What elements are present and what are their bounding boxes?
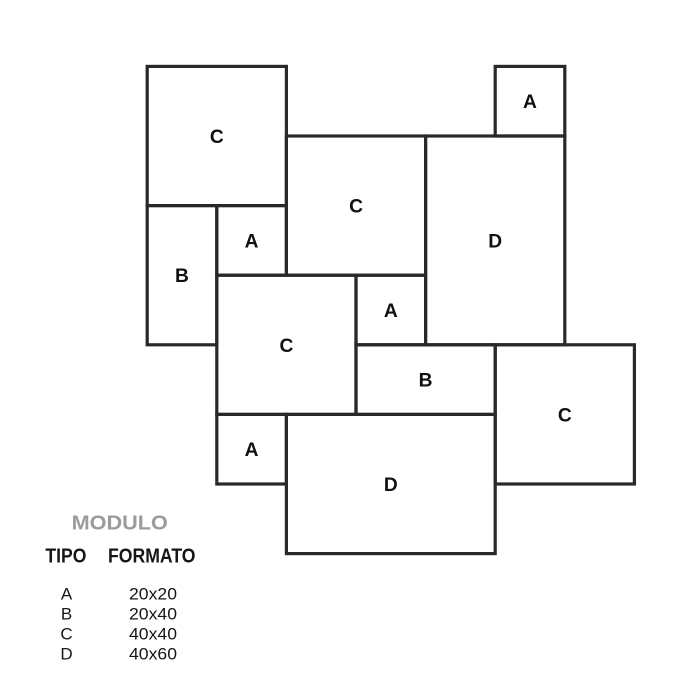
svg-text:40x40: 40x40 [129, 624, 177, 643]
svg-text:C: C [210, 127, 224, 148]
svg-text:A: A [245, 440, 259, 461]
svg-text:A: A [523, 92, 537, 113]
svg-text:D: D [488, 231, 502, 252]
svg-text:TIPO: TIPO [45, 544, 86, 567]
svg-text:40x60: 40x60 [129, 645, 177, 664]
svg-text:20x40: 20x40 [129, 605, 177, 624]
svg-text:C: C [60, 624, 72, 643]
svg-text:C: C [349, 197, 363, 218]
svg-text:A: A [384, 301, 398, 322]
svg-text:D: D [60, 645, 72, 664]
svg-text:A: A [61, 585, 73, 604]
svg-text:C: C [558, 405, 572, 426]
svg-text:FORMATO: FORMATO [108, 544, 196, 567]
svg-text:B: B [61, 605, 72, 624]
svg-text:B: B [419, 371, 433, 392]
svg-text:D: D [384, 475, 398, 496]
svg-text:20x20: 20x20 [129, 585, 177, 604]
svg-text:C: C [279, 336, 293, 357]
svg-text:MODULO: MODULO [72, 511, 168, 534]
svg-text:B: B [175, 266, 189, 287]
svg-text:A: A [245, 231, 259, 252]
